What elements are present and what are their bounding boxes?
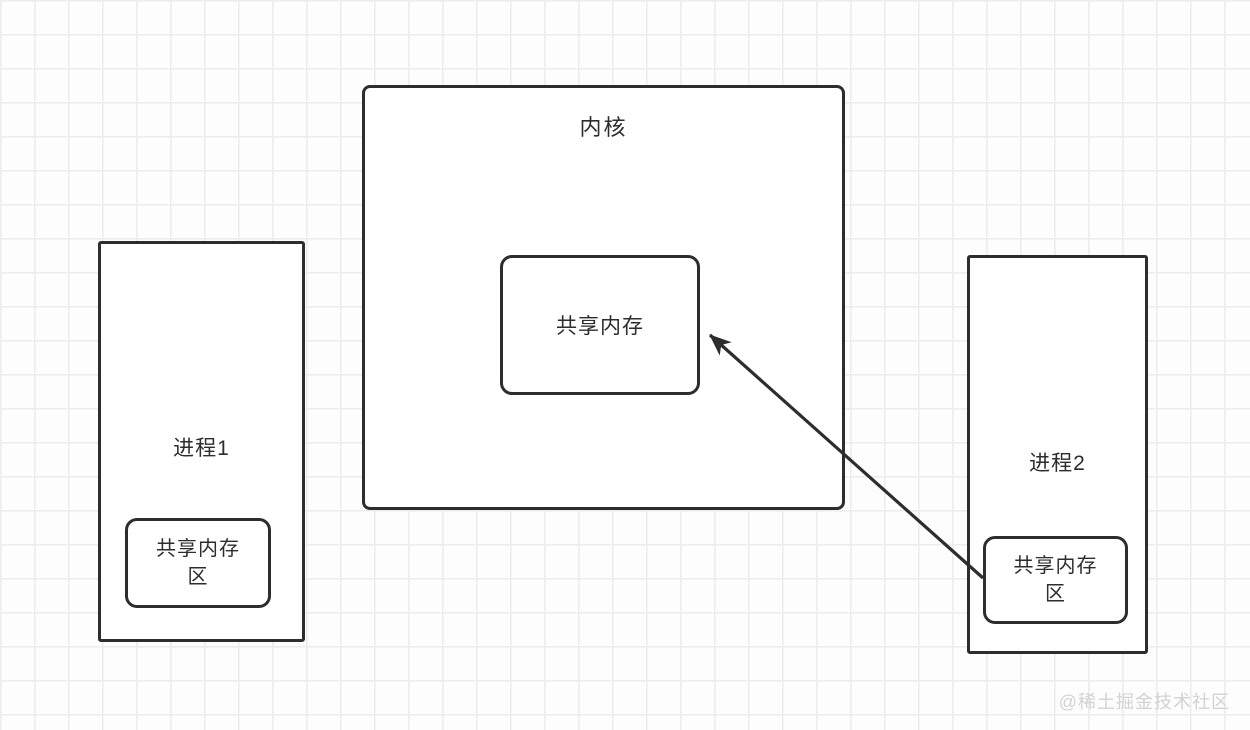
kernel-shared-memory-label: 共享内存 [556, 310, 644, 340]
process2-shared-area-label: 共享内存区 [1014, 552, 1098, 608]
process1-box: 进程1 共享内存区 [98, 241, 305, 642]
kernel-box: 内核 共享内存 [362, 85, 845, 510]
process1-shared-area-label: 共享内存区 [156, 535, 240, 591]
kernel-shared-memory-box: 共享内存 [500, 255, 700, 395]
process1-shared-area-box: 共享内存区 [125, 518, 271, 608]
process2-shared-area-box: 共享内存区 [983, 536, 1128, 624]
watermark-text: @稀土掘金技术社区 [1059, 688, 1230, 714]
process1-label: 进程1 [101, 432, 302, 462]
process2-label: 进程2 [970, 447, 1145, 477]
kernel-label: 内核 [365, 110, 842, 142]
diagram-canvas: 内核 共享内存 进程1 共享内存区 进程2 共享内存区 @稀土掘金技术社区 [0, 0, 1250, 730]
process2-box: 进程2 共享内存区 [967, 255, 1148, 654]
